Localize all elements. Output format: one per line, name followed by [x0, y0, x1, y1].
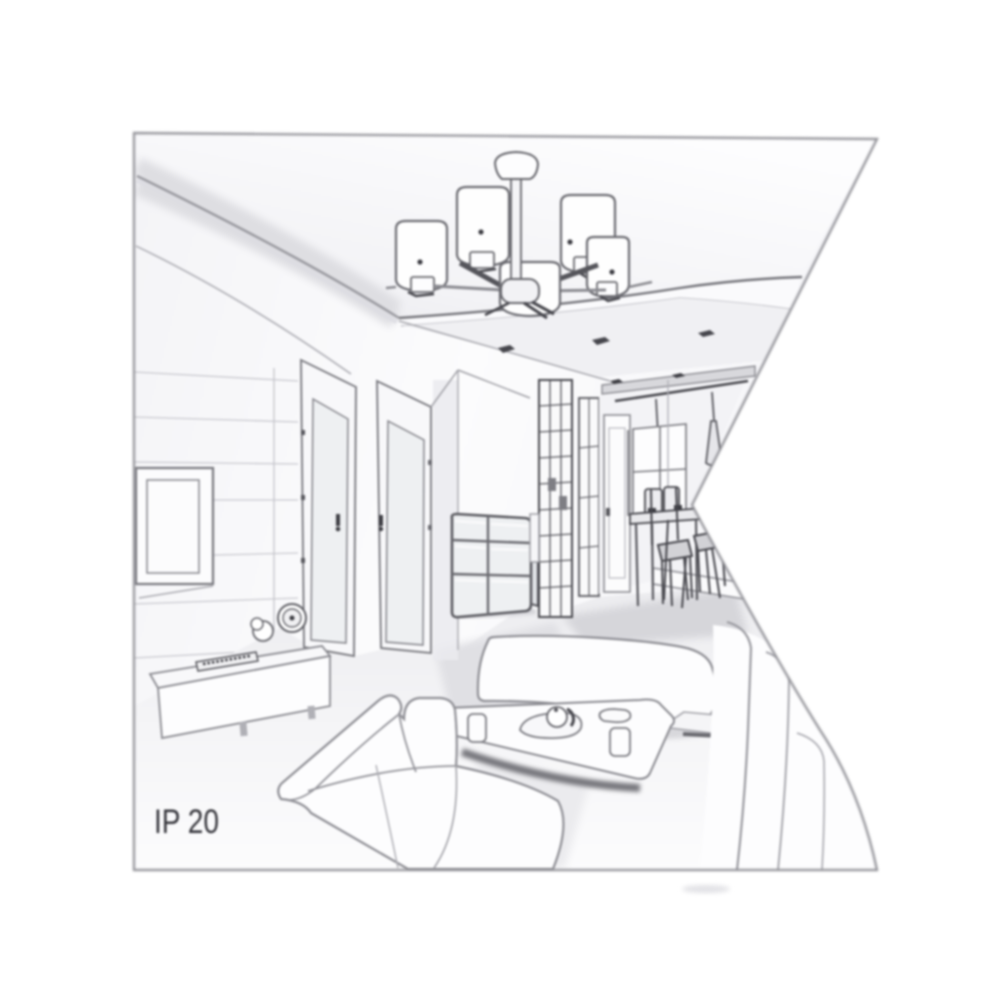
svg-text:IP 20: IP 20 — [154, 803, 219, 841]
